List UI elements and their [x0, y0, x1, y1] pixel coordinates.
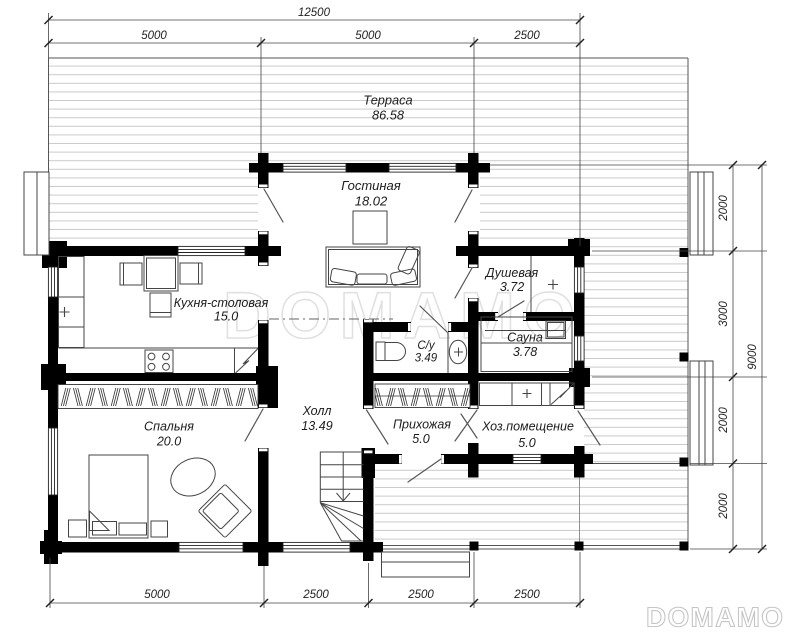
svg-text:2000: 2000: [718, 195, 730, 222]
svg-text:20.0: 20.0: [156, 435, 181, 449]
svg-text:5.0: 5.0: [518, 436, 535, 450]
svg-text:3000: 3000: [718, 301, 730, 327]
svg-text:3.72: 3.72: [500, 280, 524, 294]
svg-text:Спальня: Спальня: [144, 420, 194, 434]
svg-text:5000: 5000: [144, 589, 170, 601]
svg-text:3.78: 3.78: [513, 345, 537, 359]
svg-text:Душевая: Душевая: [484, 266, 539, 280]
svg-text:С/у: С/у: [417, 340, 436, 352]
svg-text:15.0: 15.0: [214, 310, 238, 324]
svg-text:Гостиная: Гостиная: [341, 178, 401, 193]
svg-text:5000: 5000: [141, 30, 167, 42]
svg-text:Кухня-столовая: Кухня-столовая: [174, 296, 269, 310]
svg-text:Холл: Холл: [302, 404, 332, 418]
svg-text:12500: 12500: [298, 7, 331, 19]
svg-text:86.58: 86.58: [372, 108, 405, 123]
svg-text:5.0: 5.0: [412, 432, 429, 446]
svg-text:2500: 2500: [513, 589, 540, 601]
svg-text:13.49: 13.49: [301, 419, 332, 433]
svg-text:Прихожая: Прихожая: [393, 418, 451, 432]
svg-text:Сауна: Сауна: [507, 331, 543, 345]
svg-text:2000: 2000: [718, 407, 730, 434]
svg-text:Терраса: Терраса: [363, 93, 412, 108]
svg-text:2500: 2500: [407, 589, 434, 601]
svg-text:DOMAMO: DOMAMO: [646, 602, 783, 632]
svg-text:5000: 5000: [355, 30, 381, 42]
svg-text:Хоз.помещение: Хоз.помещение: [481, 420, 574, 434]
svg-text:9000: 9000: [747, 344, 759, 370]
svg-text:3.49: 3.49: [415, 353, 438, 365]
svg-text:2000: 2000: [718, 493, 730, 520]
svg-text:18.02: 18.02: [355, 194, 388, 209]
svg-text:2500: 2500: [513, 30, 540, 42]
svg-text:2500: 2500: [302, 589, 329, 601]
